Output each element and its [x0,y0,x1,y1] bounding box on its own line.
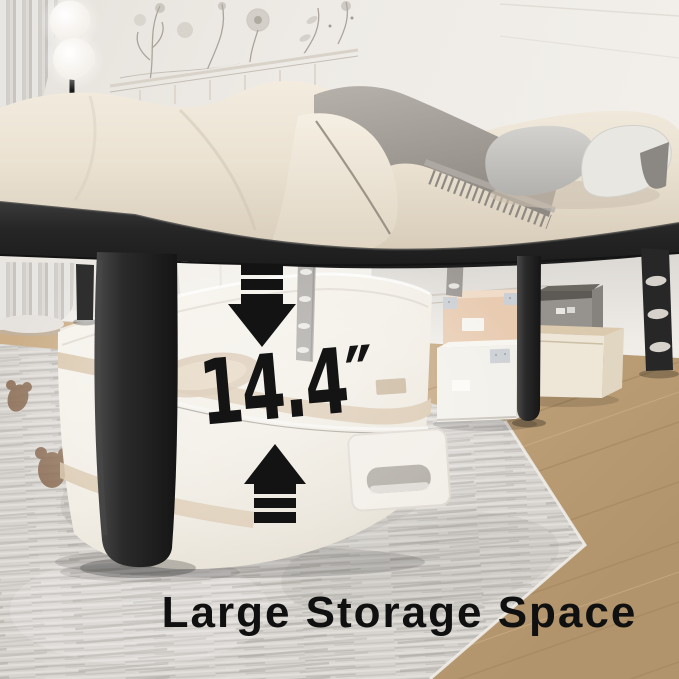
product-image: 14.4″ Large Storage Space [0,0,679,679]
bedroom-scene [0,0,679,679]
